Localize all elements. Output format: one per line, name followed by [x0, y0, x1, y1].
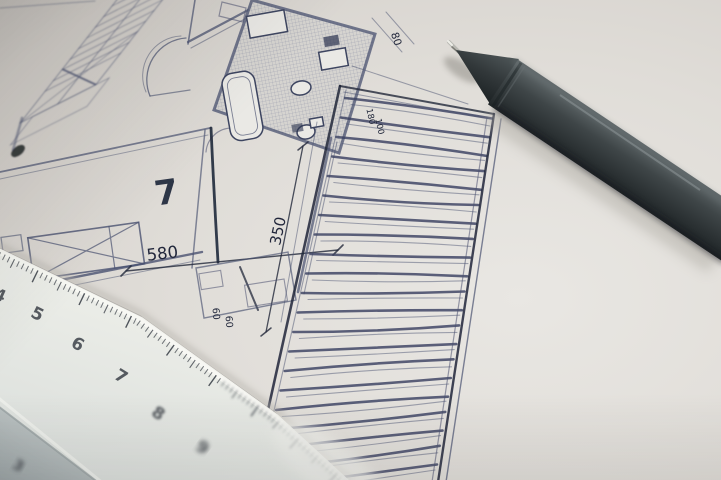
- dimension-label-60-left: 60: [209, 307, 221, 320]
- dimension-label-580: 580: [146, 242, 180, 265]
- photo-canvas: 7 580 350 60 60: [0, 0, 721, 480]
- sink-counter: [319, 48, 349, 70]
- blueprint-photo: 7 580 350 60 60: [0, 0, 721, 480]
- dimension-label-60-right: 60: [222, 315, 234, 328]
